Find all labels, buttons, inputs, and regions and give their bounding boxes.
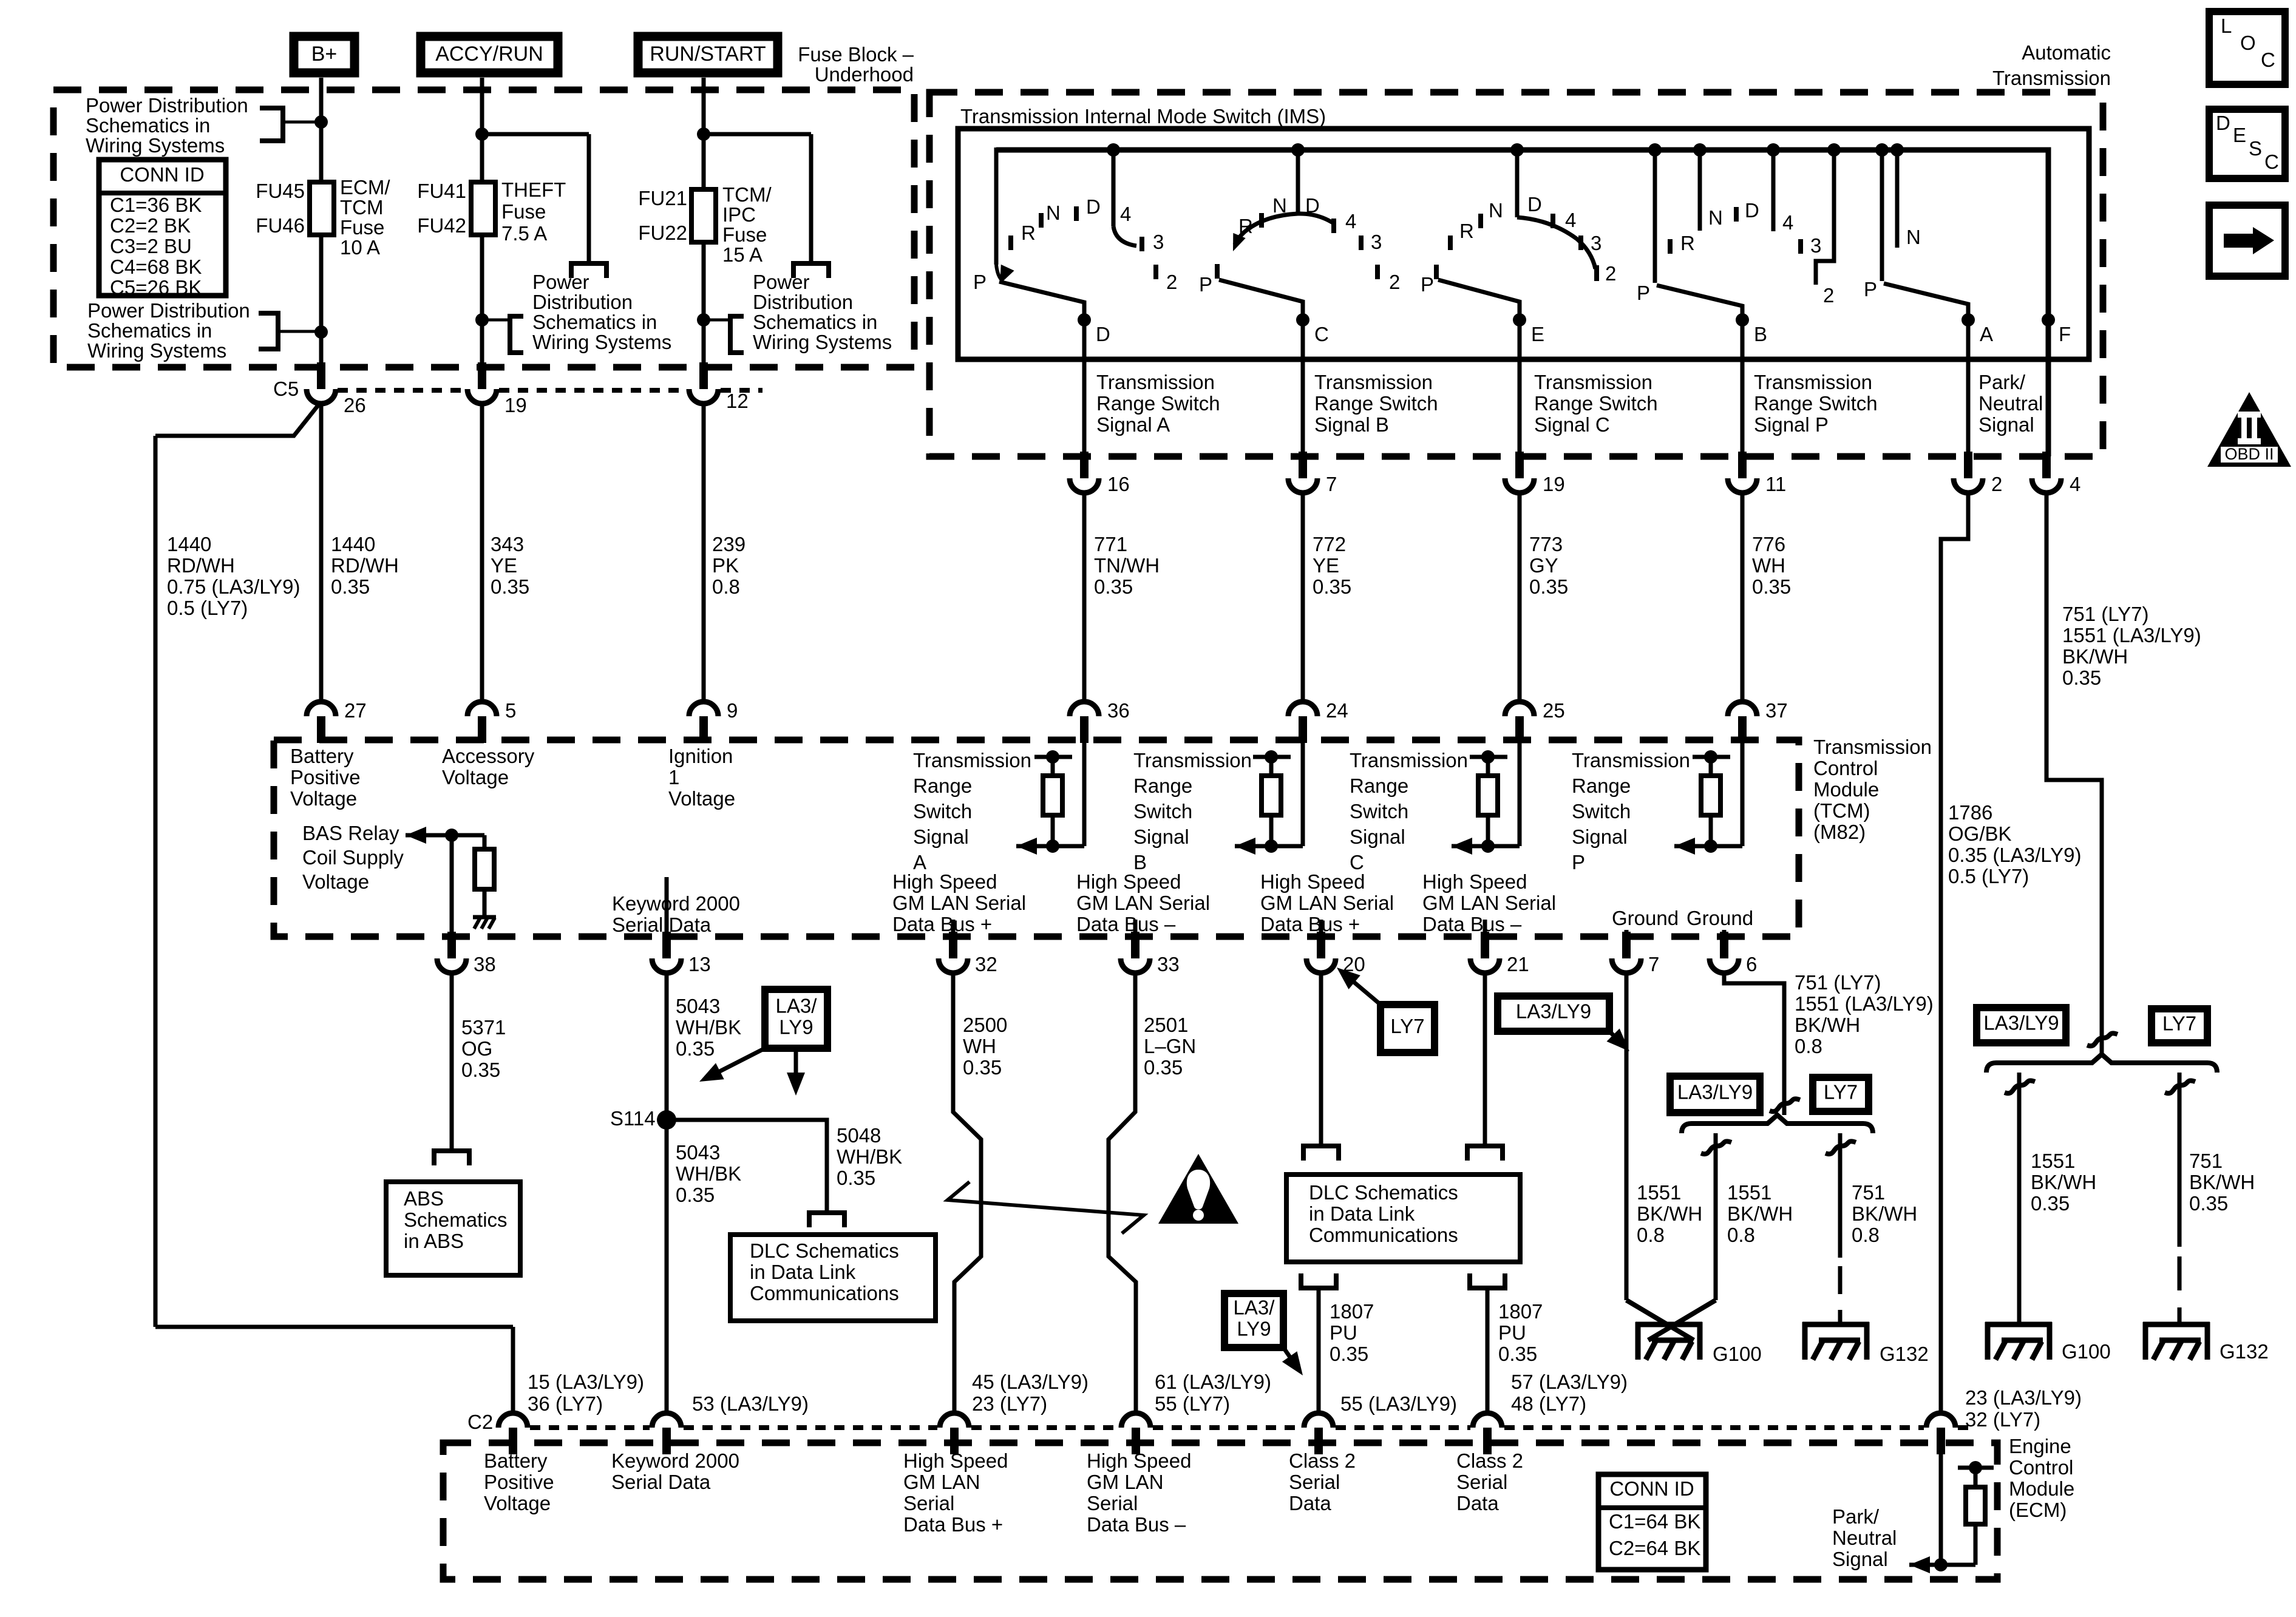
svg-text:N: N [1906, 226, 1921, 248]
svg-text:C: C [2261, 49, 2275, 71]
svg-text:R: R [1238, 215, 1253, 237]
svg-text:Transmission: Transmission [1096, 371, 1215, 393]
svg-text:Fuse Block –: Fuse Block – [798, 43, 914, 66]
svg-text:THEFT: THEFT [501, 178, 566, 201]
svg-text:33: 33 [1157, 953, 1180, 975]
svg-text:Transmission: Transmission [1314, 371, 1433, 393]
svg-text:PK: PK [712, 554, 739, 577]
svg-text:19: 19 [504, 394, 527, 416]
svg-text:CONN ID: CONN ID [120, 163, 204, 186]
svg-text:GM LAN Serial: GM LAN Serial [1260, 892, 1394, 914]
svg-text:Wiring Systems: Wiring Systems [532, 331, 671, 353]
svg-text:773: 773 [1529, 533, 1563, 555]
svg-text:27: 27 [344, 699, 367, 722]
svg-text:4: 4 [1345, 210, 1356, 232]
svg-text:D: D [1745, 199, 1759, 222]
svg-text:Range: Range [1133, 775, 1192, 797]
svg-text:Automatic: Automatic [2022, 41, 2111, 64]
svg-text:Serial: Serial [1087, 1492, 1138, 1514]
svg-text:PU: PU [1330, 1321, 1357, 1344]
svg-text:Data Bus +: Data Bus + [892, 913, 992, 935]
svg-text:Control: Control [1813, 757, 1878, 779]
svg-text:FU46: FU46 [256, 214, 305, 237]
svg-text:YE: YE [491, 554, 517, 577]
svg-text:P: P [1637, 282, 1650, 304]
svg-text:32 (LY7): 32 (LY7) [1965, 1408, 2040, 1431]
svg-text:15 (LA3/LY9): 15 (LA3/LY9) [528, 1371, 644, 1393]
svg-text:Signal A: Signal A [1096, 413, 1170, 436]
svg-text:BAS Relay: BAS Relay [302, 822, 399, 844]
svg-text:TN/WH: TN/WH [1094, 554, 1160, 577]
svg-text:C5=26 BK: C5=26 BK [110, 276, 202, 299]
svg-text:Signal: Signal [1978, 413, 2034, 436]
svg-text:0.8: 0.8 [1637, 1224, 1665, 1246]
svg-text:C4=68 BK: C4=68 BK [110, 256, 202, 278]
svg-text:High Speed: High Speed [1076, 870, 1181, 893]
svg-text:C: C [2264, 151, 2279, 173]
svg-text:Engine: Engine [2009, 1435, 2071, 1457]
svg-text:0.75 (LA3/LY9): 0.75 (LA3/LY9) [167, 575, 301, 598]
svg-text:36: 36 [1107, 699, 1130, 722]
svg-text:Underhood: Underhood [815, 63, 914, 86]
svg-text:Keyword 2000: Keyword 2000 [612, 892, 740, 915]
svg-text:WH: WH [963, 1035, 996, 1057]
svg-text:Voltage: Voltage [668, 787, 735, 810]
svg-text:Signal: Signal [1350, 825, 1405, 848]
svg-text:G132: G132 [1880, 1343, 1929, 1365]
svg-text:High Speed: High Speed [892, 870, 997, 893]
svg-text:GM LAN: GM LAN [1087, 1471, 1164, 1493]
svg-text:Transmission: Transmission [1572, 749, 1690, 771]
svg-text:TCM/: TCM/ [722, 183, 772, 206]
svg-text:Transmission Internal Mode Swi: Transmission Internal Mode Switch (IMS) [960, 105, 1326, 127]
svg-text:24: 24 [1326, 699, 1348, 722]
svg-text:N: N [1489, 199, 1503, 222]
svg-text:0.35: 0.35 [1094, 575, 1133, 598]
svg-text:G132: G132 [2220, 1340, 2269, 1363]
svg-text:0.35 (LA3/LY9): 0.35 (LA3/LY9) [1948, 844, 2082, 866]
svg-text:LA3/: LA3/ [776, 995, 818, 1017]
svg-text:1551 (LA3/LY9): 1551 (LA3/LY9) [1795, 992, 1934, 1015]
svg-text:BK/WH: BK/WH [1727, 1202, 1793, 1225]
svg-text:776: 776 [1752, 533, 1785, 555]
svg-text:2: 2 [1605, 262, 1616, 285]
svg-text:Positive: Positive [290, 766, 361, 788]
svg-text:F: F [2059, 323, 2071, 345]
svg-text:5048: 5048 [837, 1124, 881, 1147]
svg-text:26: 26 [344, 394, 366, 416]
svg-text:0.35: 0.35 [2062, 666, 2101, 689]
svg-text:Wiring Systems: Wiring Systems [753, 331, 892, 353]
svg-text:Switch: Switch [913, 800, 972, 822]
svg-text:N: N [1046, 202, 1061, 224]
svg-text:1807: 1807 [1498, 1300, 1543, 1323]
svg-text:5043: 5043 [676, 995, 720, 1017]
svg-text:C5: C5 [273, 378, 299, 400]
svg-text:Communications: Communications [750, 1282, 899, 1304]
svg-text:FU41: FU41 [417, 180, 466, 202]
svg-text:53 (LA3/LY9): 53 (LA3/LY9) [692, 1392, 809, 1415]
svg-text:Module: Module [1813, 778, 1879, 801]
svg-text:FU22: FU22 [638, 222, 687, 244]
svg-text:0.35: 0.35 [1330, 1343, 1368, 1365]
svg-text:RUN/START: RUN/START [650, 42, 766, 66]
svg-text:4: 4 [1120, 203, 1131, 225]
svg-text:LA3/LY9: LA3/LY9 [1516, 1000, 1591, 1023]
svg-text:0.5 (LY7): 0.5 (LY7) [167, 597, 248, 619]
svg-text:OG: OG [461, 1037, 492, 1060]
svg-text:Transmission: Transmission [913, 749, 1031, 771]
svg-text:Power Distribution: Power Distribution [86, 94, 248, 117]
svg-text:1: 1 [668, 766, 679, 788]
svg-text:Transmission: Transmission [1133, 749, 1252, 771]
svg-text:LA3/: LA3/ [1234, 1297, 1275, 1319]
svg-text:Schematics in: Schematics in [86, 114, 210, 137]
svg-text:P: P [1421, 273, 1434, 296]
svg-text:GY: GY [1529, 554, 1558, 577]
svg-text:343: 343 [491, 533, 524, 555]
svg-text:38: 38 [474, 953, 496, 975]
svg-text:in Data Link: in Data Link [750, 1261, 856, 1283]
svg-text:High Speed: High Speed [1422, 870, 1527, 893]
svg-text:5371: 5371 [461, 1016, 506, 1039]
svg-text:0.5 (LY7): 0.5 (LY7) [1948, 865, 2029, 887]
svg-text:23 (LY7): 23 (LY7) [972, 1392, 1047, 1415]
svg-text:32: 32 [975, 953, 997, 975]
svg-text:LY7: LY7 [1390, 1015, 1424, 1037]
svg-text:L: L [2221, 15, 2232, 37]
svg-text:1786: 1786 [1948, 801, 1992, 824]
svg-text:2501: 2501 [1144, 1014, 1188, 1036]
svg-text:R: R [1680, 232, 1695, 254]
svg-text:0.35: 0.35 [1752, 575, 1791, 598]
svg-text:L–GN: L–GN [1144, 1035, 1196, 1057]
svg-text:D: D [1096, 323, 1110, 345]
svg-text:Distribution: Distribution [532, 291, 633, 313]
svg-text:PU: PU [1498, 1321, 1526, 1344]
svg-text:Voltage: Voltage [442, 766, 509, 788]
svg-text:1440: 1440 [331, 533, 375, 555]
svg-text:D: D [1305, 194, 1320, 217]
svg-text:2: 2 [1991, 473, 2002, 495]
svg-text:Serial: Serial [1289, 1471, 1340, 1493]
svg-text:0.8: 0.8 [1795, 1035, 1822, 1057]
svg-text:Battery: Battery [484, 1449, 548, 1472]
svg-text:Switch: Switch [1350, 800, 1408, 822]
svg-text:0.35: 0.35 [963, 1056, 1002, 1079]
svg-text:Data Bus –: Data Bus – [1422, 913, 1522, 935]
svg-text:0.35: 0.35 [1529, 575, 1568, 598]
svg-text:Data: Data [1289, 1492, 1331, 1514]
svg-text:YE: YE [1313, 554, 1339, 577]
svg-text:C2=64 BK: C2=64 BK [1609, 1537, 1700, 1559]
svg-text:Signal P: Signal P [1754, 413, 1829, 436]
svg-text:Switch: Switch [1133, 800, 1192, 822]
svg-text:55 (LA3/LY9): 55 (LA3/LY9) [1340, 1392, 1457, 1415]
svg-text:C: C [1314, 323, 1329, 345]
svg-text:in ABS: in ABS [404, 1230, 464, 1252]
svg-text:RD/WH: RD/WH [331, 554, 399, 577]
svg-text:Signal: Signal [913, 825, 969, 848]
svg-text:Signal C: Signal C [1534, 413, 1610, 436]
svg-text:LY9: LY9 [1237, 1318, 1271, 1340]
svg-text:751: 751 [2189, 1150, 2223, 1172]
svg-text:2500: 2500 [963, 1014, 1007, 1036]
svg-text:High Speed: High Speed [1260, 870, 1365, 893]
svg-text:Schematics: Schematics [404, 1209, 508, 1231]
svg-text:ECM/: ECM/ [340, 176, 390, 198]
svg-text:N: N [1272, 194, 1287, 217]
svg-text:G100: G100 [1713, 1343, 1762, 1365]
svg-text:2: 2 [1166, 271, 1177, 293]
svg-text:Range Switch: Range Switch [1314, 392, 1438, 415]
svg-text:3: 3 [1153, 231, 1164, 253]
svg-text:Positive: Positive [484, 1471, 554, 1493]
svg-text:Fuse: Fuse [722, 223, 767, 246]
svg-text:0.35: 0.35 [331, 575, 370, 598]
svg-text:4: 4 [1565, 209, 1576, 231]
svg-text:Fuse: Fuse [501, 200, 546, 223]
svg-text:7: 7 [1326, 473, 1337, 495]
svg-text:0.35: 0.35 [2189, 1192, 2228, 1215]
svg-text:Park/: Park/ [1832, 1505, 1880, 1528]
svg-text:FU42: FU42 [417, 214, 466, 237]
svg-text:High Speed: High Speed [1087, 1449, 1191, 1472]
svg-text:11: 11 [1765, 473, 1786, 495]
svg-text:5043: 5043 [676, 1141, 720, 1164]
svg-text:Class 2: Class 2 [1456, 1449, 1523, 1472]
svg-text:BK/WH: BK/WH [2062, 645, 2128, 668]
svg-text:ABS: ABS [404, 1187, 444, 1210]
svg-text:Accessory: Accessory [442, 745, 535, 767]
svg-text:Range Switch: Range Switch [1096, 392, 1220, 415]
svg-text:10 A: 10 A [340, 236, 380, 259]
svg-text:0.35: 0.35 [837, 1167, 875, 1189]
svg-text:Neutral: Neutral [1978, 392, 2043, 415]
svg-text:S: S [2249, 137, 2262, 160]
svg-text:0.35: 0.35 [1498, 1343, 1537, 1365]
svg-text:Signal: Signal [1133, 825, 1189, 848]
svg-text:C3=2 BU: C3=2 BU [110, 235, 192, 257]
svg-text:Range: Range [1350, 775, 1408, 797]
svg-text:Transmission: Transmission [1350, 749, 1468, 771]
svg-text:Ground: Ground [1686, 907, 1753, 929]
svg-text:19: 19 [1543, 473, 1565, 495]
svg-text:Schematics in: Schematics in [753, 311, 877, 333]
svg-text:Data Bus +: Data Bus + [1260, 913, 1360, 935]
svg-text:12: 12 [726, 390, 749, 412]
svg-text:Range: Range [1572, 775, 1631, 797]
svg-text:Serial: Serial [1456, 1471, 1507, 1493]
svg-text:(M82): (M82) [1813, 821, 1866, 843]
svg-text:Communications: Communications [1309, 1224, 1458, 1246]
svg-text:Data Bus –: Data Bus – [1087, 1513, 1186, 1536]
svg-text:Wiring Systems: Wiring Systems [86, 134, 225, 157]
svg-text:E: E [1531, 323, 1544, 345]
svg-text:E: E [2233, 124, 2246, 146]
svg-text:21: 21 [1507, 953, 1529, 975]
svg-text:751 (LY7): 751 (LY7) [1795, 971, 1881, 994]
svg-text:BK/WH: BK/WH [2031, 1171, 2096, 1193]
svg-text:Data: Data [1456, 1492, 1499, 1514]
svg-text:37: 37 [1765, 699, 1788, 722]
svg-text:Class 2: Class 2 [1289, 1449, 1356, 1472]
svg-text:61 (LA3/LY9): 61 (LA3/LY9) [1155, 1371, 1271, 1393]
svg-text:P: P [973, 271, 987, 293]
svg-text:1551: 1551 [1637, 1181, 1681, 1204]
svg-text:WH/BK: WH/BK [676, 1016, 741, 1039]
svg-text:2: 2 [1823, 284, 1834, 307]
svg-text:R: R [1459, 220, 1474, 242]
svg-text:in Data Link: in Data Link [1309, 1202, 1415, 1225]
svg-text:55 (LY7): 55 (LY7) [1155, 1392, 1230, 1415]
svg-text:0.35: 0.35 [2031, 1192, 2070, 1215]
svg-text:0.8: 0.8 [712, 575, 740, 598]
svg-text:Neutral: Neutral [1832, 1527, 1897, 1549]
svg-text:R: R [1021, 222, 1036, 244]
svg-text:1807: 1807 [1330, 1300, 1374, 1323]
svg-text:OG/BK: OG/BK [1948, 822, 2012, 845]
svg-text:Signal B: Signal B [1314, 413, 1389, 436]
svg-text:N: N [1708, 206, 1723, 229]
svg-text:5: 5 [505, 699, 516, 722]
svg-text:C1=64 BK: C1=64 BK [1609, 1510, 1700, 1533]
svg-text:751 (LY7): 751 (LY7) [2062, 603, 2148, 625]
svg-text:Power: Power [532, 271, 589, 293]
svg-text:TCM: TCM [340, 196, 383, 219]
svg-text:Transmission: Transmission [1754, 371, 1872, 393]
svg-text:Fuse: Fuse [340, 216, 384, 239]
svg-text:0.35: 0.35 [1144, 1056, 1183, 1079]
svg-text:GM LAN: GM LAN [903, 1471, 980, 1493]
svg-text:Ground: Ground [1612, 907, 1679, 929]
svg-text:771: 771 [1094, 533, 1127, 555]
svg-text:0.35: 0.35 [676, 1037, 715, 1060]
svg-text:3: 3 [1810, 234, 1821, 257]
svg-text:25: 25 [1543, 699, 1565, 722]
svg-text:LY9: LY9 [779, 1016, 813, 1039]
svg-text:Serial: Serial [903, 1492, 954, 1514]
svg-text:3: 3 [1371, 231, 1382, 253]
svg-text:P: P [1199, 273, 1212, 296]
svg-text:Schematics in: Schematics in [532, 311, 657, 333]
svg-text:0.35: 0.35 [1313, 575, 1351, 598]
svg-text:1551: 1551 [2031, 1150, 2075, 1172]
svg-text:Distribution: Distribution [753, 291, 853, 313]
svg-text:BK/WH: BK/WH [1795, 1014, 1860, 1036]
svg-text:57 (LA3/LY9): 57 (LA3/LY9) [1511, 1371, 1628, 1393]
svg-text:13: 13 [688, 953, 711, 975]
svg-text:Voltage: Voltage [484, 1492, 551, 1514]
svg-text:1551: 1551 [1727, 1181, 1771, 1204]
svg-text:Ignition: Ignition [668, 745, 733, 767]
svg-text:239: 239 [712, 533, 746, 555]
svg-text:LY7: LY7 [2162, 1012, 2196, 1035]
svg-text:C2: C2 [467, 1411, 493, 1433]
svg-text:D: D [1086, 195, 1101, 218]
svg-text:LA3/LY9: LA3/LY9 [1983, 1012, 2059, 1034]
svg-text:Power Distribution: Power Distribution [87, 299, 250, 322]
svg-text:WH/BK: WH/BK [676, 1162, 741, 1185]
svg-text:(ECM): (ECM) [2009, 1499, 2067, 1521]
svg-text:Transmission: Transmission [1813, 736, 1932, 758]
svg-text:C1=36 BK: C1=36 BK [110, 194, 202, 216]
svg-text:BK/WH: BK/WH [2189, 1171, 2255, 1193]
svg-text:S114: S114 [610, 1107, 656, 1130]
svg-text:751: 751 [1852, 1181, 1885, 1204]
svg-text:Switch: Switch [1572, 800, 1631, 822]
svg-text:B: B [1754, 323, 1767, 345]
svg-text:WH/BK: WH/BK [837, 1145, 902, 1168]
svg-text:ACCY/RUN: ACCY/RUN [435, 42, 543, 66]
svg-text:772: 772 [1313, 533, 1346, 555]
svg-text:CONN ID: CONN ID [1609, 1477, 1694, 1500]
svg-text:(TCM): (TCM) [1813, 799, 1870, 822]
svg-text:GM LAN Serial: GM LAN Serial [1422, 892, 1556, 914]
svg-text:Park/: Park/ [1978, 371, 2026, 393]
svg-text:0.35: 0.35 [461, 1059, 500, 1081]
svg-text:D: D [1527, 193, 1542, 215]
svg-text:WH: WH [1752, 554, 1785, 577]
svg-text:BK/WH: BK/WH [1637, 1202, 1702, 1225]
svg-text:DLC Schematics: DLC Schematics [1309, 1181, 1458, 1204]
svg-text:Range Switch: Range Switch [1754, 392, 1878, 415]
svg-text:Data Bus –: Data Bus – [1076, 913, 1176, 935]
svg-text:FU45: FU45 [256, 180, 305, 202]
svg-text:48 (LY7): 48 (LY7) [1511, 1392, 1586, 1415]
svg-text:LY7: LY7 [1824, 1081, 1858, 1103]
svg-text:1440: 1440 [167, 533, 211, 555]
svg-text:GM LAN Serial: GM LAN Serial [1076, 892, 1210, 914]
svg-text:Signal: Signal [1832, 1548, 1888, 1570]
svg-text:FU21: FU21 [638, 187, 687, 209]
svg-text:RD/WH: RD/WH [167, 554, 235, 577]
svg-text:15 A: 15 A [722, 243, 763, 266]
svg-text:Serial Data: Serial Data [612, 914, 712, 936]
svg-text:Serial Data: Serial Data [611, 1471, 711, 1493]
svg-text:Keyword 2000: Keyword 2000 [611, 1449, 739, 1472]
svg-text:Voltage: Voltage [302, 870, 369, 893]
svg-text:1551 (LA3/LY9): 1551 (LA3/LY9) [2062, 624, 2201, 646]
svg-text:Transmission: Transmission [1992, 67, 2111, 89]
svg-text:0.35: 0.35 [491, 575, 529, 598]
svg-text:0.35: 0.35 [676, 1184, 715, 1206]
svg-text:B+: B+ [311, 42, 338, 66]
svg-text:2: 2 [1389, 271, 1400, 293]
svg-text:Battery: Battery [290, 745, 354, 767]
svg-text:7: 7 [1648, 953, 1659, 975]
svg-text:0.8: 0.8 [1852, 1224, 1880, 1246]
svg-text:A: A [1980, 323, 1993, 345]
svg-text:Range Switch: Range Switch [1534, 392, 1658, 415]
svg-text:Coil Supply: Coil Supply [302, 846, 404, 869]
svg-text:C2=2 BK: C2=2 BK [110, 214, 191, 237]
svg-text:OBD II: OBD II [2224, 445, 2274, 463]
svg-text:Schematics in: Schematics in [87, 319, 212, 342]
svg-text:6: 6 [1746, 953, 1757, 975]
svg-text:45 (LA3/LY9): 45 (LA3/LY9) [972, 1371, 1089, 1393]
svg-text:Voltage: Voltage [290, 787, 357, 810]
svg-text:DLC Schematics: DLC Schematics [750, 1239, 899, 1262]
svg-text:3: 3 [1591, 232, 1601, 254]
svg-text:IPC: IPC [722, 203, 756, 226]
svg-text:Control: Control [2009, 1456, 2073, 1479]
svg-text:9: 9 [727, 699, 738, 722]
svg-text:7.5 A: 7.5 A [501, 222, 547, 245]
svg-text:O: O [2240, 32, 2256, 54]
svg-text:4: 4 [2070, 473, 2080, 495]
svg-text:High Speed: High Speed [903, 1449, 1008, 1472]
